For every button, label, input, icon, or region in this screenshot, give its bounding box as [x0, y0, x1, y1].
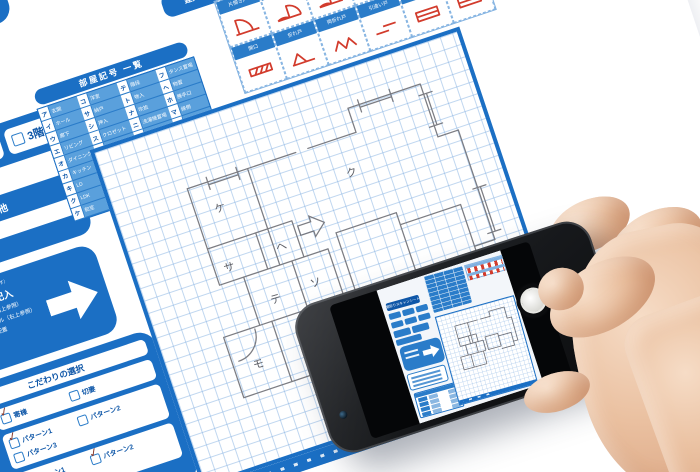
mini-floor-plan: [436, 297, 531, 387]
mini-arrow-icon: [421, 342, 441, 360]
scene: 間取りスキャンシート 3階 その他 mm （1階はこの面に記: [0, 0, 700, 472]
mini-button: [402, 307, 415, 316]
sheet-title-bar: 間取りスキャンシート: [0, 0, 14, 99]
handwritten-check: ✓: [0, 404, 11, 419]
mini-button: [391, 320, 404, 329]
floor-chip-clipped: [0, 133, 5, 176]
option-label: 切妻: [80, 384, 96, 398]
option-label: パターン2: [89, 403, 122, 422]
checkbox: [76, 414, 89, 427]
mini-button: [418, 312, 431, 321]
checkbox: ✓: [8, 436, 21, 449]
option-label: パターン2: [102, 441, 135, 460]
mini-button: [411, 322, 429, 333]
checkbox: [68, 389, 81, 402]
mini-button: [404, 316, 417, 325]
checkbox: ✓: [89, 452, 102, 465]
checkbox: ✓: [0, 412, 12, 425]
checkbox: [13, 451, 26, 464]
handwritten-check: ✓: [5, 428, 20, 443]
door-symbol-icon: [444, 0, 494, 22]
option-label: パターン1: [33, 464, 66, 472]
option-label: 寄棟: [12, 406, 28, 420]
checkbox: [11, 132, 26, 147]
mini-room-table: [424, 266, 473, 313]
mini-button: [415, 304, 428, 313]
mini-button: [388, 311, 401, 320]
